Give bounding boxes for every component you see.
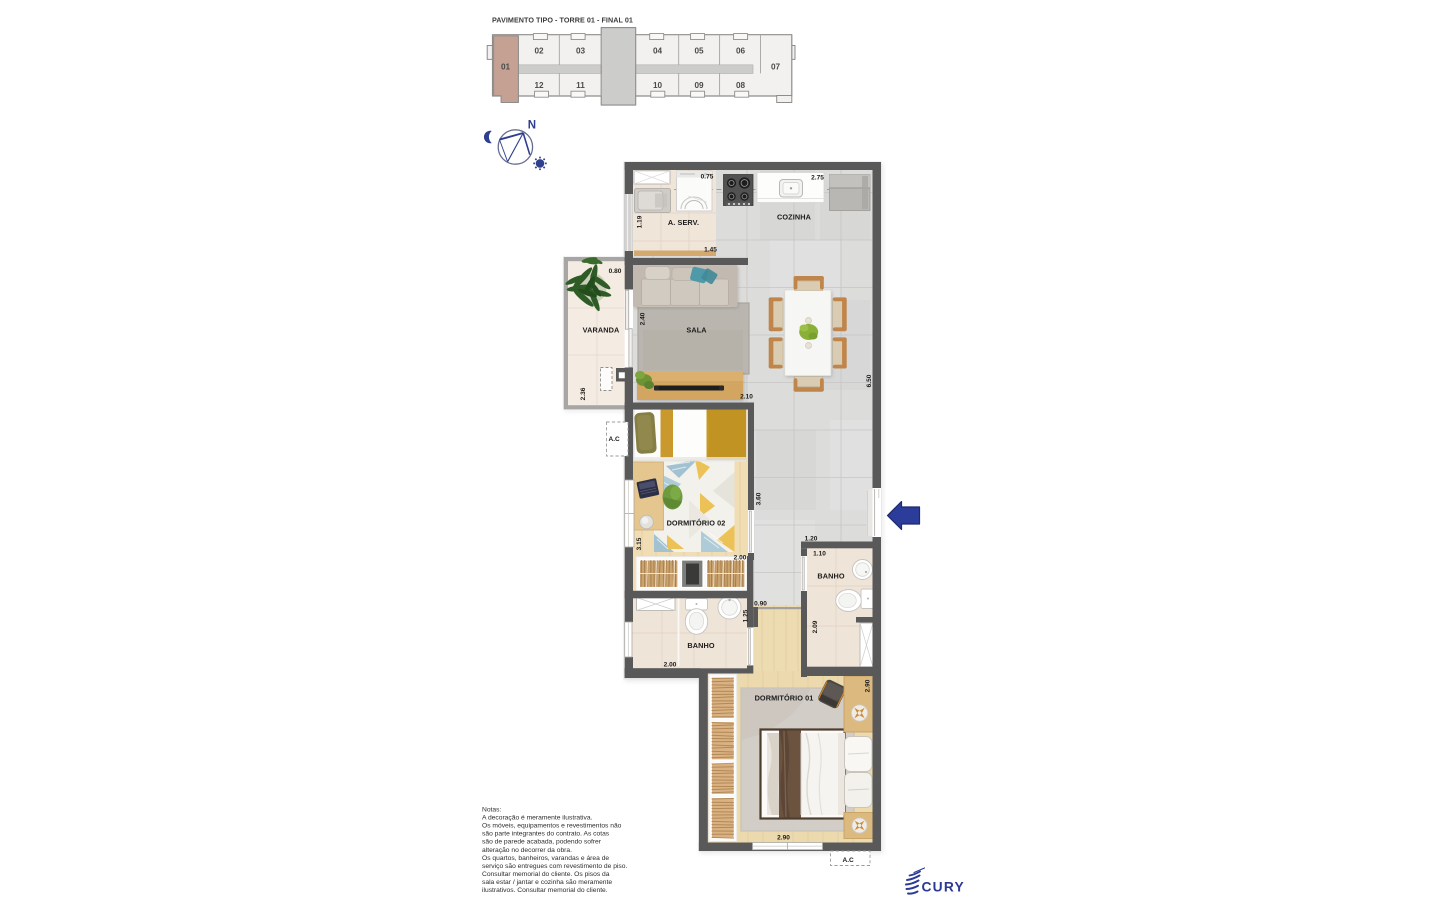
svg-text:Consultar memorial do cliente.: Consultar memorial do cliente. Os pisos … [482, 871, 610, 878]
svg-text:Os móveis, equipamentos e reve: Os móveis, equipamentos e revestimentos … [482, 823, 622, 830]
svg-text:2.40: 2.40 [640, 312, 647, 325]
svg-text:BANHO: BANHO [817, 572, 844, 581]
svg-text:CURY: CURY [922, 880, 965, 895]
svg-text:05: 05 [694, 47, 704, 56]
svg-text:03: 03 [576, 47, 586, 56]
svg-text:01: 01 [501, 63, 511, 72]
svg-text:N: N [528, 120, 536, 132]
svg-text:0.75: 0.75 [701, 174, 714, 181]
svg-text:alteração no decorrer da obra.: alteração no decorrer da obra. [482, 847, 572, 854]
svg-text:2.36: 2.36 [580, 387, 587, 400]
svg-text:DORMITÓRIO 02: DORMITÓRIO 02 [667, 519, 726, 528]
svg-text:07: 07 [771, 63, 781, 72]
svg-text:2.00: 2.00 [664, 662, 677, 669]
svg-text:2.75: 2.75 [811, 175, 824, 182]
svg-text:0.80: 0.80 [609, 268, 622, 275]
svg-text:09: 09 [694, 81, 704, 90]
svg-text:são de parede acabada, podendo: são de parede acabada, podendo sofrer [482, 839, 602, 846]
svg-text:A.C: A.C [609, 436, 621, 443]
svg-text:1.45: 1.45 [704, 247, 717, 254]
svg-text:A. SERV.: A. SERV. [668, 218, 699, 227]
svg-text:2.09: 2.09 [812, 620, 819, 633]
svg-text:2.90: 2.90 [777, 835, 790, 842]
svg-text:são parte integrantes do contr: são parte integrantes do contrato. As co… [482, 831, 610, 838]
svg-text:6.50: 6.50 [866, 374, 873, 387]
svg-text:Notas:: Notas: [482, 807, 501, 814]
svg-text:10: 10 [653, 81, 663, 90]
svg-text:2.90: 2.90 [864, 679, 871, 692]
svg-text:0.90: 0.90 [754, 601, 767, 608]
svg-text:A decoração é meramente ilustr: A decoração é meramente ilustrativa. [482, 815, 593, 822]
svg-text:12: 12 [534, 81, 544, 90]
svg-text:Os quartos, banheiros, varanda: Os quartos, banheiros, varandas e área d… [482, 855, 609, 862]
svg-text:VARANDA: VARANDA [583, 326, 620, 335]
svg-text:1.19: 1.19 [637, 215, 644, 228]
svg-text:SALA: SALA [686, 326, 707, 335]
svg-text:2.10: 2.10 [740, 394, 753, 401]
svg-text:2.00: 2.00 [734, 555, 747, 562]
svg-text:08: 08 [736, 81, 746, 90]
svg-text:04: 04 [653, 47, 663, 56]
svg-text:DORMITÓRIO 01: DORMITÓRIO 01 [755, 694, 814, 703]
svg-text:PAVIMENTO TIPO - TORRE 01 - FI: PAVIMENTO TIPO - TORRE 01 - FINAL 01 [492, 16, 633, 25]
svg-text:COZINHA: COZINHA [777, 213, 812, 222]
svg-text:1.25: 1.25 [743, 609, 750, 622]
svg-text:11: 11 [576, 81, 585, 90]
svg-text:3.60: 3.60 [755, 492, 762, 505]
svg-text:sala estar / jantar e cozinha: sala estar / jantar e cozinha são merame… [482, 879, 612, 886]
svg-text:06: 06 [736, 47, 746, 56]
svg-text:02: 02 [534, 47, 544, 56]
svg-text:1.20: 1.20 [805, 536, 818, 543]
svg-text:BANHO: BANHO [687, 641, 714, 650]
svg-text:1.10: 1.10 [813, 551, 826, 558]
svg-text:serviço são entregues com reve: serviço são entregues com revestimento d… [482, 863, 627, 870]
svg-text:ilustrativos. Consultar memori: ilustrativos. Consultar memorial do clie… [482, 887, 608, 894]
svg-text:3.15: 3.15 [636, 537, 643, 550]
svg-text:A.C: A.C [843, 857, 855, 864]
